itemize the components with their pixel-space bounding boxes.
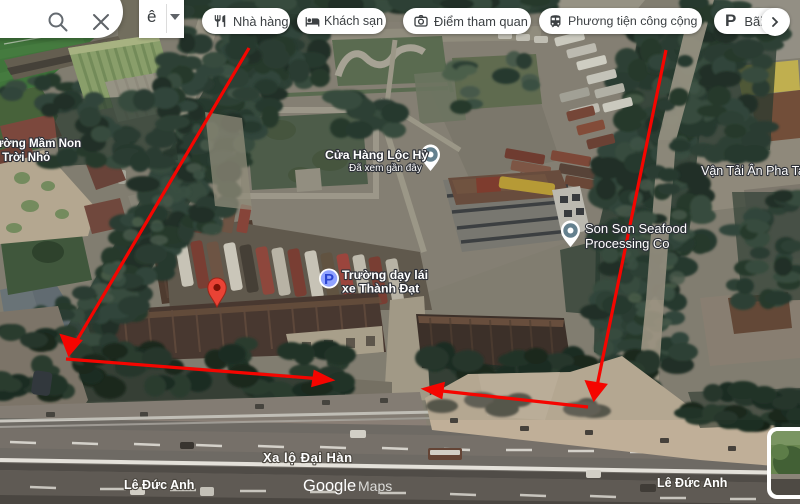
- svg-text:P: P: [324, 271, 334, 288]
- svg-text:Maps: Maps: [358, 478, 392, 494]
- svg-text:Xa lộ Đại Hàn: Xa lộ Đại Hàn: [263, 450, 353, 465]
- svg-text:Trường dạy lái: Trường dạy lái: [342, 268, 428, 282]
- svg-text:Đã xem gần đây: Đã xem gần đây: [349, 162, 422, 174]
- svg-text:Lê Đức Anh: Lê Đức Anh: [124, 478, 194, 492]
- svg-text:Google: Google: [303, 477, 356, 495]
- svg-text:xe Thành Đạt: xe Thành Đạt: [342, 282, 419, 296]
- svg-text:t Trời Nhỏ: t Trời Nhỏ: [0, 151, 50, 164]
- svg-text:Vận Tải Ân Pha Ta: Vận Tải Ân Pha Ta: [701, 163, 800, 178]
- svg-text:ường Mầm Non: ường Mầm Non: [0, 137, 81, 150]
- svg-text:Son Son Seafood: Son Son Seafood: [585, 221, 687, 236]
- svg-text:Lê Đức Anh: Lê Đức Anh: [657, 476, 727, 490]
- svg-text:Processing Co: Processing Co: [585, 236, 670, 251]
- svg-text:Cửa Hàng Lộc Hỷ: Cửa Hàng Lộc Hỷ: [325, 148, 428, 162]
